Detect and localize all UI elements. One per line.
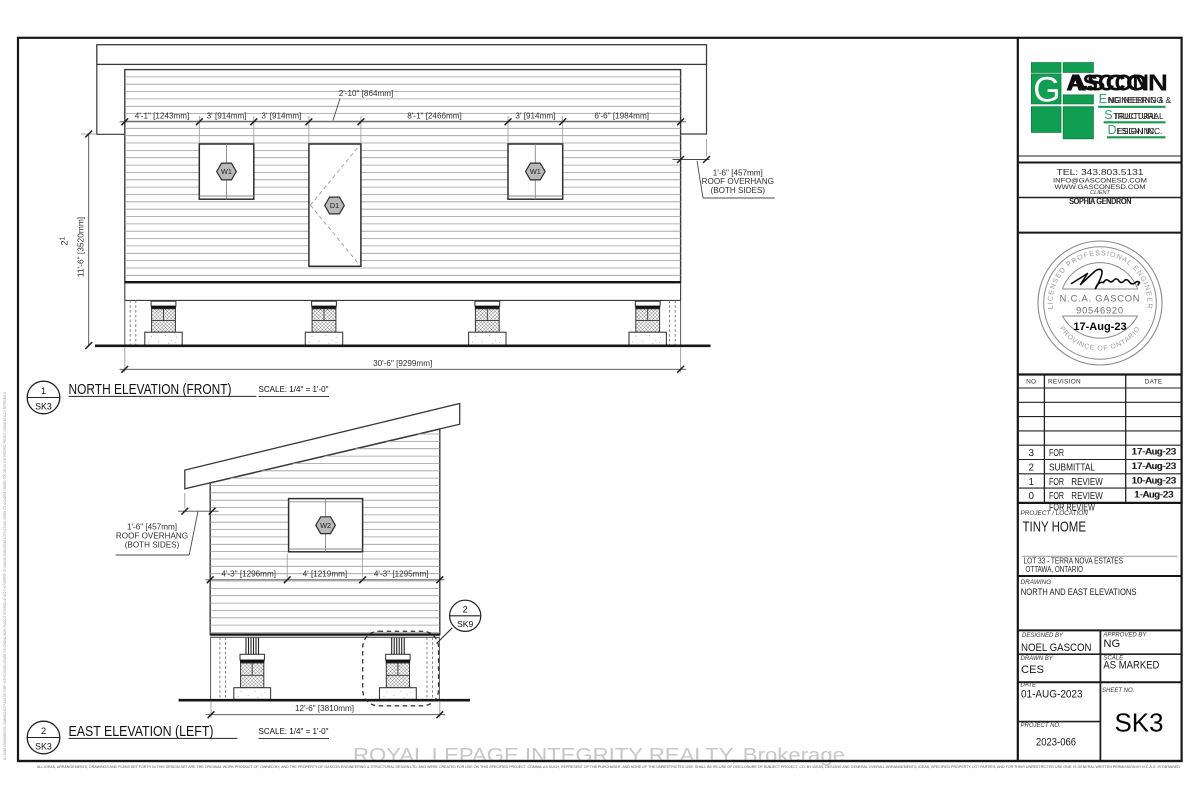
svg-text:17-Aug-23: 17-Aug-23 [1131,447,1175,458]
svg-text:0: 0 [1028,491,1034,502]
svg-text:REVIEW: REVIEW [1071,477,1103,488]
svg-text:3' [914mm]: 3' [914mm] [207,111,247,120]
svg-text:2'-10" [864mm]: 2'-10" [864mm] [339,89,394,98]
svg-text:NG: NG [1103,638,1120,650]
svg-text:30'-6" [9299mm]: 30'-6" [9299mm] [373,359,432,368]
svg-text:DRAWING: DRAWING [1021,579,1052,586]
svg-text:DESIGNED BY: DESIGNED BY [1022,633,1064,639]
svg-text:SHEET NO.: SHEET NO. [1102,688,1134,694]
svg-text:N.C.A. GASCON: N.C.A. GASCON [1060,294,1141,304]
svg-text:PROJECT / LOCATION: PROJECT / LOCATION [1021,510,1089,517]
svg-text:OTTAWA, ONTARIO: OTTAWA, ONTARIO [1026,565,1084,574]
svg-text:FOR: FOR [1049,448,1064,459]
svg-text:1'-6" [457mm]: 1'-6" [457mm] [713,168,763,177]
svg-text:FOR: FOR [1049,491,1064,502]
svg-text:ROOF OVERHANG: ROOF OVERHANG [702,177,774,186]
svg-text:W1: W1 [221,167,232,176]
svg-text:6'-6" [1984mm]: 6'-6" [1984mm] [594,111,649,120]
svg-text:ROYAL LEPAGE INTEGRITY REALTY,: ROYAL LEPAGE INTEGRITY REALTY, Brokerage [353,745,845,767]
svg-text:1: 1 [1028,477,1033,488]
svg-text:EAST ELEVATION (LEFT): EAST ELEVATION (LEFT) [69,724,214,740]
svg-text:3' [914mm]: 3' [914mm] [261,111,301,120]
svg-text:4'-1" [1243mm]: 4'-1" [1243mm] [135,111,190,120]
svg-text:1-Aug-23: 1-Aug-23 [1134,490,1173,501]
svg-text:SCALE: 1/4" = 1'-0": SCALE: 1/4" = 1'-0" [259,384,329,394]
svg-text:4' [1219mm]: 4' [1219mm] [303,569,347,578]
svg-text:S: S [1104,108,1112,122]
svg-text:4'-3" [1295mm]: 4'-3" [1295mm] [374,569,429,578]
svg-text:PROJECT NO.: PROJECT NO. [1021,723,1061,729]
svg-text:3' [914mm]: 3' [914mm] [515,111,555,120]
svg-text:ALL IDEAS, ARRANGEMENTS, DRAWI: ALL IDEAS, ARRANGEMENTS, DRAWINGS AND PL… [37,765,1181,769]
svg-text:TINY HOME: TINY HOME [1023,520,1087,536]
svg-text:TRUCTURAL: TRUCTURAL [1114,112,1164,121]
svg-text:2: 2 [41,726,46,736]
svg-text:W1: W1 [530,167,541,176]
svg-text:E: E [1099,92,1107,106]
svg-text:12'-6" [3810mm]: 12'-6" [3810mm] [295,704,354,713]
svg-text:ROOF OVERHANG: ROOF OVERHANG [116,532,188,541]
svg-text:2: 2 [1028,463,1033,474]
svg-text:CES: CES [1021,664,1044,676]
svg-text:3: 3 [1028,448,1034,459]
svg-text:1: 1 [41,386,46,396]
svg-text:AS MARKED: AS MARKED [1103,659,1159,671]
svg-text:SK9: SK9 [457,619,473,629]
svg-text:(BOTH SIDES): (BOTH SIDES) [710,186,765,195]
svg-text:SCALE: 1/4" = 1'-0": SCALE: 1/4" = 1'-0" [259,726,329,736]
svg-text:SK3: SK3 [1115,707,1164,737]
svg-text:NORTH AND EAST ELEVATIONS: NORTH AND EAST ELEVATIONS [1021,587,1137,597]
svg-text:FOR: FOR [1049,477,1064,488]
svg-text:NO: NO [1026,379,1036,386]
svg-text:ASCON: ASCON [1067,70,1169,96]
svg-text:1'-6" [457mm]: 1'-6" [457mm] [127,523,177,532]
svg-text:ESIGN INC.: ESIGN INC. [1117,127,1162,136]
svg-text:SK3: SK3 [35,401,52,411]
svg-text:4'-3" [1296mm]: 4'-3" [1296mm] [221,569,276,578]
svg-text:DRAWN BY: DRAWN BY [1021,656,1054,662]
svg-text:01-AUG-2023: 01-AUG-2023 [1021,689,1083,701]
svg-text:ALL IDEAS, ARRANGEMENTS, DRAWI: ALL IDEAS, ARRANGEMENTS, DRAWINGS AND PL… [3,392,7,760]
svg-text:2: 2 [463,604,468,614]
svg-text:SOPHIA GENDRON: SOPHIA GENDRON [1069,197,1131,206]
svg-text:CLIENT: CLIENT [1090,190,1110,196]
svg-text:REVIEW: REVIEW [1071,491,1103,502]
svg-text:10-Aug-23: 10-Aug-23 [1131,475,1175,486]
svg-text:D1: D1 [330,201,339,210]
svg-text:11'-6" [3520mm]: 11'-6" [3520mm] [76,217,86,277]
svg-text:NGINEERING &: NGINEERING & [1108,96,1172,105]
svg-text:SUBMITTAL: SUBMITTAL [1049,463,1095,474]
svg-text:2023-066: 2023-066 [1036,737,1076,749]
svg-text:TEL: 343.803.5131: TEL: 343.803.5131 [1057,168,1144,177]
svg-text:W2: W2 [320,521,331,530]
svg-text:17-Aug-23: 17-Aug-23 [1073,321,1126,333]
svg-text:D: D [1108,123,1117,137]
svg-text:8'-1" [2466mm]: 8'-1" [2466mm] [407,111,462,120]
svg-text:REVISION: REVISION [1048,379,1081,386]
svg-text:90546920: 90546920 [1076,306,1124,316]
svg-text:NORTH ELEVATION (FRONT): NORTH ELEVATION (FRONT) [69,382,232,398]
svg-text:DATE: DATE [1145,379,1163,386]
svg-text:SK3: SK3 [35,741,52,751]
svg-text:(BOTH SIDES): (BOTH SIDES) [125,540,180,549]
svg-text:G: G [1033,71,1060,110]
svg-text:NOEL GASCON: NOEL GASCON [1021,642,1092,654]
svg-text:17-Aug-23: 17-Aug-23 [1131,461,1175,472]
